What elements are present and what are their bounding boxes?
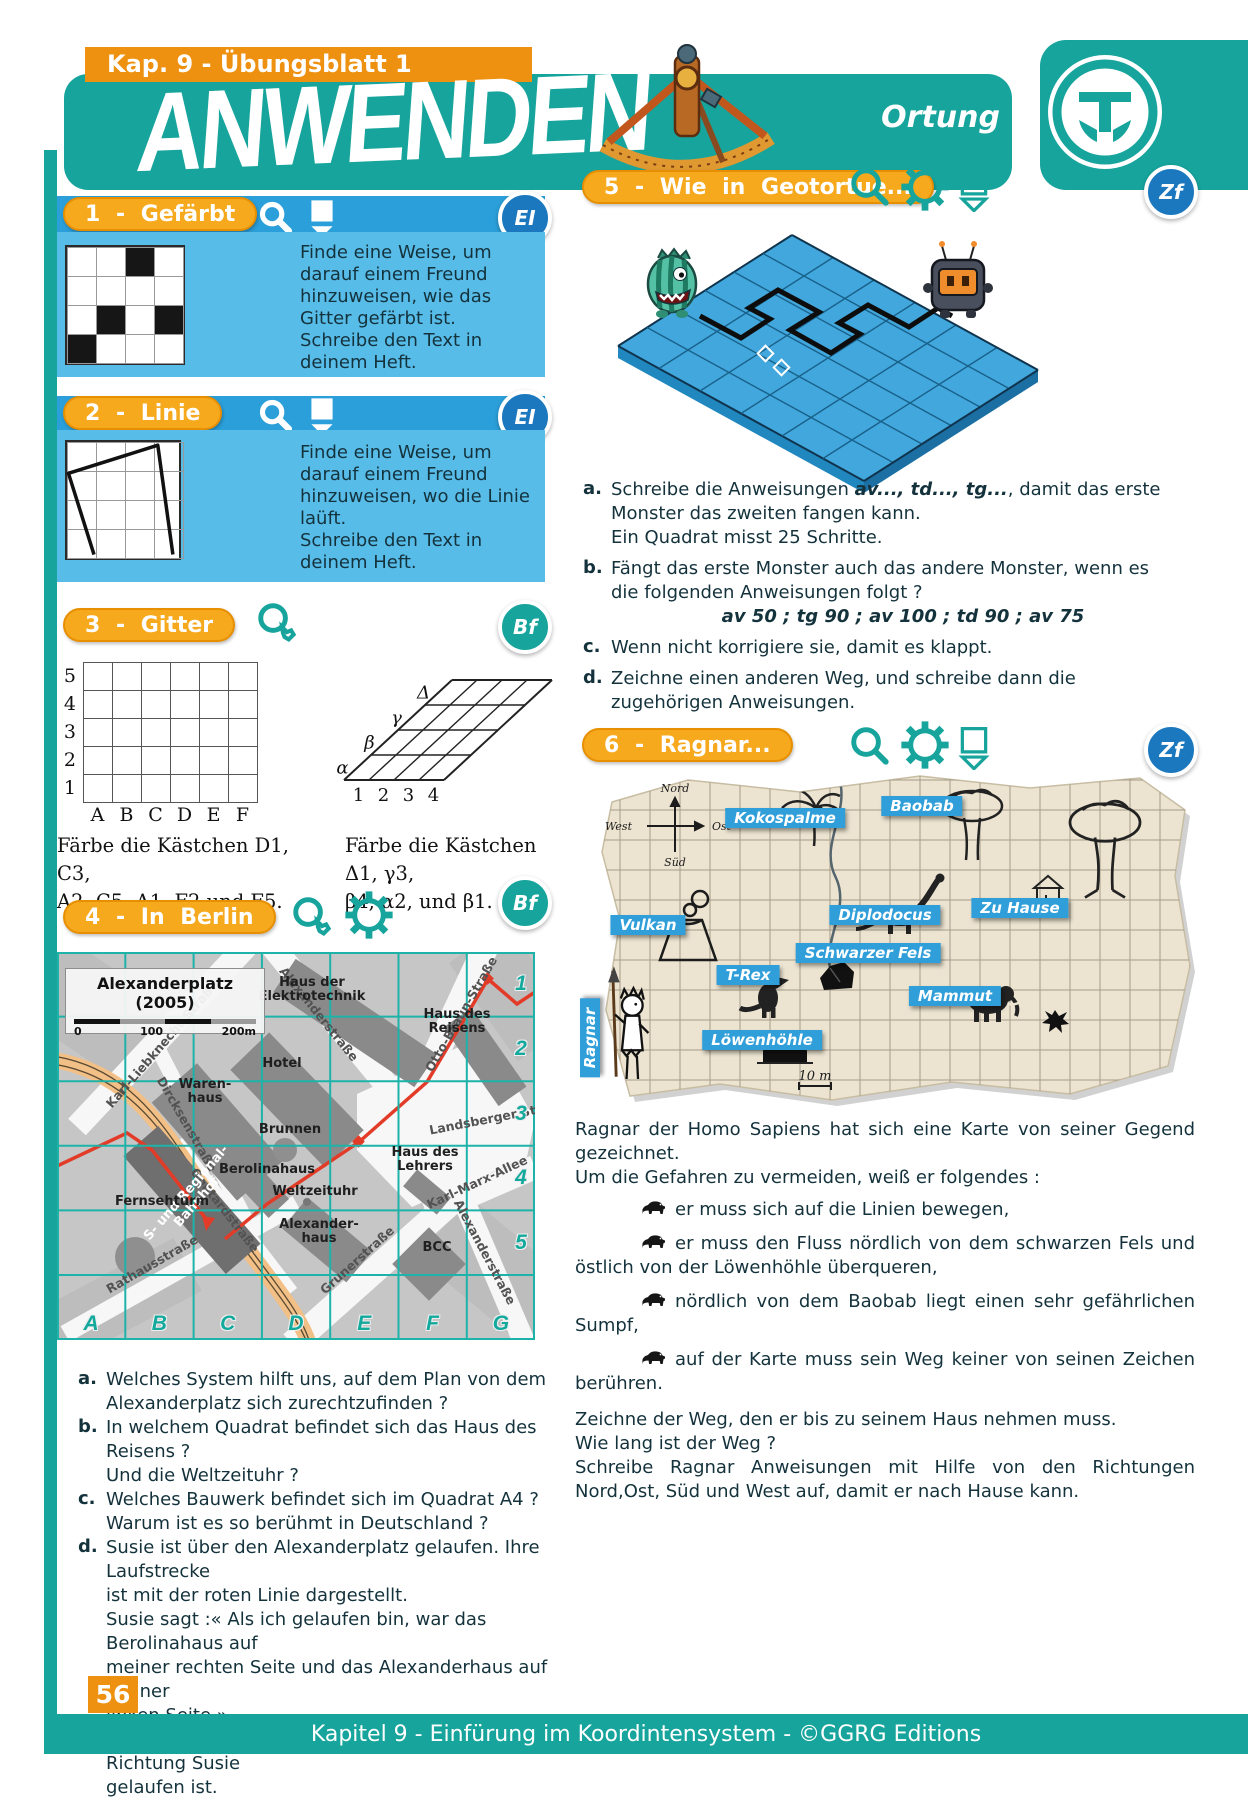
footer-bar: Kapitel 9 - Einfürung im Koordintensyste…: [44, 1714, 1248, 1754]
text: , damit das erste: [1008, 479, 1161, 500]
grid-cell: [228, 690, 258, 719]
bullet-text: er muss sich auf die Linien bewegen,: [675, 1199, 1009, 1220]
bullet-item: nördlich von dem Baobab liegt einen sehr…: [575, 1290, 1195, 1338]
question-row: d.Susie ist über den Alexanderplatz gela…: [78, 1536, 556, 1800]
ex1-pill: 1 - Gefärbt: [63, 197, 257, 231]
item-key: c.: [583, 636, 611, 660]
text-line: darauf einem Freund: [300, 464, 540, 486]
grid-cell: [112, 746, 142, 775]
ragnar-map: Nord West Ost Süd 10 m KokospalmeBaobabV…: [600, 768, 1195, 1108]
text: Schreibe die Anweisungen: [611, 479, 855, 500]
text-line: deinem Heft.: [300, 552, 540, 574]
item-line: Fängt das erste Monster auch das andere …: [611, 557, 1195, 581]
grid-cell: [125, 247, 155, 277]
grid-cell: [96, 276, 126, 306]
grid-label: 3: [403, 785, 414, 806]
grid-cell: [141, 718, 171, 747]
item-lines: Fängt das erste Monster auch das andere …: [611, 557, 1195, 629]
ex2-box: Finde eine Weise, umdarauf einem Freundh…: [57, 430, 545, 582]
text-line: Gitter gefärbt ist.: [300, 308, 540, 330]
question-key: a.: [78, 1368, 106, 1416]
text-line: Finde eine Weise, um: [300, 242, 540, 264]
grid-cell: [228, 662, 258, 691]
grid-label: β: [363, 733, 374, 754]
ex6-pill: 6 - Ragnar...: [582, 728, 793, 762]
ex1-box: Finde eine Weise, umdarauf einem Freundh…: [57, 232, 545, 377]
map-letter: E: [357, 1312, 371, 1336]
exercise-item: a.Schreibe die Anweisungen av..., td...,…: [583, 478, 1195, 550]
text: die folgenden Anweisungen folgt ?: [611, 582, 923, 603]
grid-cell: [83, 774, 113, 803]
grid-cell: [112, 718, 142, 747]
map-number: 4: [515, 1166, 527, 1190]
question-line: In welchem Quadrat befindet sich das Hau…: [106, 1416, 556, 1464]
grid-cell: [125, 334, 155, 364]
grid-cell: [67, 247, 97, 277]
bison-icon: [641, 1199, 665, 1219]
corner: [57, 802, 83, 830]
item-line: die folgenden Anweisungen folgt ?: [611, 581, 1195, 605]
text: Fängt das erste Monster auch das andere …: [611, 558, 1149, 579]
ex6-outro: Zeichne der Weg, den er bis zu seinem Ha…: [575, 1408, 1195, 1504]
col-label: B: [112, 802, 141, 830]
ex3-right-grid: αβγΔ1234: [330, 648, 575, 813]
text: Ein Quadrat misst 25 Schritte.: [611, 527, 883, 548]
intro-line: Ragnar der Homo Sapiens hat sich eine Ka…: [575, 1118, 1195, 1166]
command-text: av..., td..., tg...: [855, 479, 1008, 500]
monster-robot: [923, 241, 993, 318]
map-ribbon: Vulkan: [610, 915, 685, 935]
gear-icon: [342, 888, 396, 942]
question-line: meiner rechten Seite und das Alexanderha…: [106, 1656, 556, 1704]
building-label: Haus des Reisens: [423, 1008, 490, 1036]
brand-logo-icon: [1052, 59, 1158, 165]
row-label: 2: [57, 746, 83, 774]
map-title: Alexanderplatz (2005): [74, 974, 256, 1012]
map-letter: D: [288, 1312, 303, 1336]
ex2-line-figure: [65, 440, 181, 556]
grid-cell: [83, 662, 113, 691]
theme-label: Ortung: [860, 100, 1000, 135]
map-ribbon: Schwarzer Fels: [796, 943, 941, 963]
compass-south: Süd: [664, 856, 686, 869]
intro-line: Um die Gefahren zu vermeiden, weiß er fo…: [575, 1166, 1195, 1190]
grid-cell: [83, 718, 113, 747]
text: zugehörigen Anweisungen.: [611, 692, 855, 713]
map-ribbon: Kokospalme: [725, 808, 845, 828]
item-key: b.: [583, 557, 611, 629]
building-label: Hotel: [262, 1057, 301, 1071]
ex2-text: Finde eine Weise, umdarauf einem Freundh…: [300, 442, 540, 574]
col-label: A: [83, 802, 112, 830]
ex6-bullets: er muss sich auf die Linien bewegen, er …: [575, 1188, 1195, 1396]
item-key: d.: [583, 667, 611, 715]
grid-label: γ: [391, 708, 402, 729]
grid-cell: [199, 746, 229, 775]
magnifier-icon: [290, 894, 336, 940]
map-scale-bar: [74, 1019, 256, 1024]
ex3-badge: Bf: [498, 600, 552, 654]
ex5-items: a.Schreibe die Anweisungen av..., td...,…: [583, 478, 1195, 722]
grid-cell: [112, 774, 142, 803]
scale-label: 0: [74, 1025, 82, 1038]
compass-west: West: [605, 820, 633, 833]
brand-logo: [1048, 55, 1162, 169]
bullet-item: auf der Karte muss sein Weg keiner von s…: [575, 1348, 1195, 1396]
building-label: Fernsehturm: [115, 1195, 209, 1209]
ex4-badge: Bf: [498, 876, 552, 930]
item-lines: Wenn nicht korrigiere sie, damit es klap…: [611, 636, 1195, 660]
grid-label: 2: [378, 785, 389, 806]
building-label: Waren- haus: [179, 1078, 232, 1106]
col-label: C: [141, 802, 170, 830]
bison-icon: [641, 1291, 665, 1311]
grid-cell: [154, 247, 184, 277]
grid-label: 1: [353, 785, 364, 806]
map-number: 3: [515, 1102, 527, 1126]
map-ribbon: T-Rex: [717, 965, 780, 985]
bullet-item: er muss sich auf die Linien bewegen,: [575, 1198, 1195, 1222]
map-number: 5: [515, 1231, 527, 1255]
magnifier-icon: [255, 600, 301, 646]
grid-label: 4: [428, 785, 439, 806]
map-letter: G: [493, 1312, 509, 1336]
grid-cell: [154, 334, 184, 364]
grid-cell: [112, 690, 142, 719]
col-label: E: [199, 802, 228, 830]
question-line: Warum ist es so berühmt in Deutschland ?: [106, 1512, 556, 1536]
map-letter: C: [220, 1312, 235, 1336]
grid-cell: [170, 746, 200, 775]
map-letter: A: [84, 1312, 99, 1336]
item-key: a.: [583, 478, 611, 550]
item-line: Zeichne einen anderen Weg, und schreibe …: [611, 667, 1195, 691]
magnifier-icon: [258, 200, 294, 236]
grid-cell: [96, 334, 126, 364]
grid-cell: [67, 334, 97, 364]
grid-label: α: [336, 758, 348, 779]
grid-cell: [141, 774, 171, 803]
outro-line: Schreibe Ragnar Anweisungen mit Hilfe vo…: [575, 1456, 1195, 1504]
question-lines: Welches System hilft uns, auf dem Plan v…: [106, 1368, 556, 1416]
map-scale-labels: 0100200m: [74, 1025, 256, 1038]
ragnar-name-ribbon: Ragnar: [580, 999, 600, 1078]
question-line: Susie sagt :« Als ich gelaufen bin, war …: [106, 1608, 556, 1656]
grid-cell: [141, 690, 171, 719]
gear-icon: [898, 718, 952, 772]
magnifier-icon: [848, 724, 894, 770]
map-ribbon: Löwenhöhle: [702, 1030, 822, 1050]
grid-cell: [170, 690, 200, 719]
exercise-item: b.Fängt das erste Monster auch das ander…: [583, 557, 1195, 629]
item-line: av 50 ; tg 90 ; av 100 ; td 90 ; av 75: [611, 605, 1195, 629]
question-line: Alexanderplatz sich zurechtzufinden ?: [106, 1392, 556, 1416]
scale-label: 10 m: [798, 1069, 831, 1084]
ex6-intro: Ragnar der Homo Sapiens hat sich eine Ka…: [575, 1118, 1195, 1190]
item-line: zugehörigen Anweisungen.: [611, 691, 1195, 715]
question-line: Welches Bauwerk befindet sich im Quadrat…: [106, 1488, 556, 1512]
compass-north: Nord: [660, 782, 690, 795]
grid-cell: [83, 746, 113, 775]
left-accent-bar: [44, 150, 57, 1754]
text-line: darauf einem Freund: [300, 264, 540, 286]
map-ribbon: Diplodocus: [829, 905, 940, 925]
question-line: Susie ist über den Alexanderplatz gelauf…: [106, 1536, 556, 1584]
ragnar-map-figure: Nord West Ost Süd 10 m: [600, 768, 1195, 1108]
grid-cell: [141, 662, 171, 691]
ex1-text: Finde eine Weise, umdarauf einem Freundh…: [300, 242, 540, 374]
geotortue-figure: [600, 198, 1070, 498]
question-line: Und die Weltzeituhr ?: [106, 1464, 556, 1488]
item-line: Ein Quadrat misst 25 Schritte.: [611, 526, 1195, 550]
building-label: Haus der Elektrotechnik: [259, 976, 366, 1004]
grid-cell: [170, 662, 200, 691]
item-line: Monster das zweiten fangen kann.: [611, 502, 1195, 526]
building-label: Brunnen: [259, 1123, 321, 1137]
grid-cell: [170, 718, 200, 747]
text-line: laüft.: [300, 508, 540, 530]
text: Wenn nicht korrigiere sie, damit es klap…: [611, 637, 992, 658]
grid-cell: [154, 276, 184, 306]
row-label: 3: [57, 718, 83, 746]
text-line: hinzuweisen, wo die Linie: [300, 486, 540, 508]
question-key: b.: [78, 1416, 106, 1488]
magnifier-icon: [258, 398, 294, 434]
question-line: ist mit der roten Linie dargestellt.: [106, 1584, 556, 1608]
exercise-item: d.Zeichne einen anderen Weg, und schreib…: [583, 667, 1195, 715]
pencil-icon: [955, 726, 993, 770]
item-lines: Zeichne einen anderen Weg, und schreibe …: [611, 667, 1195, 715]
building-label: Weltzeituhr: [272, 1185, 357, 1199]
map-ribbon: Mammut: [909, 986, 1001, 1006]
map-ribbon: Zu Hause: [971, 898, 1068, 918]
text-line: Schreibe den Text in: [300, 330, 540, 352]
exercise-item: c.Wenn nicht korrigiere sie, damit es kl…: [583, 636, 1195, 660]
question-row: b.In welchem Quadrat befindet sich das H…: [78, 1416, 556, 1488]
question-lines: In welchem Quadrat befindet sich das Hau…: [106, 1416, 556, 1488]
row-label: 4: [57, 690, 83, 718]
map-letter: B: [152, 1312, 167, 1336]
grid-cell: [125, 276, 155, 306]
ex2-grid-wrap: [65, 440, 181, 556]
bison-icon: [641, 1349, 665, 1369]
bullet-text: nördlich von dem Baobab liegt einen sehr…: [575, 1291, 1195, 1336]
row-label: 1: [57, 774, 83, 802]
text: Monster das zweiten fangen kann.: [611, 503, 921, 524]
grid-cell: [67, 276, 97, 306]
bullet-item: er muss den Fluss nördlich von dem schwa…: [575, 1232, 1195, 1280]
ex1-grid: [65, 245, 185, 365]
outro-line: Zeichne der Weg, den er bis zu seinem Ha…: [575, 1408, 1195, 1432]
grid-cell: [199, 718, 229, 747]
question-lines: Susie ist über den Alexanderplatz gelauf…: [106, 1536, 556, 1800]
grid-cell: [96, 305, 126, 335]
question-row: c.Welches Bauwerk befindet sich im Quadr…: [78, 1488, 556, 1536]
grid-cell: [199, 662, 229, 691]
map-ribbon: Baobab: [881, 796, 962, 816]
outro-line: Wie lang ist der Weg ?: [575, 1432, 1195, 1456]
map-title-box: Alexanderplatz (2005) 0100200m: [65, 968, 265, 1034]
question-key: d.: [78, 1536, 106, 1800]
grid-cell: [199, 774, 229, 803]
bison-icon: [641, 1233, 665, 1253]
grid-cell: [228, 774, 258, 803]
ex5-badge: Zf: [1144, 165, 1198, 219]
text-line: Schreibe den Text in: [300, 530, 540, 552]
item-line: Wenn nicht korrigiere sie, damit es klap…: [611, 636, 1195, 660]
command-text: av 50 ; tg 90 ; av 100 ; td 90 ; av 75: [722, 606, 1085, 627]
ex4-pill: 4 - In Berlin: [63, 900, 276, 934]
item-line: Schreibe die Anweisungen av..., td..., t…: [611, 478, 1195, 502]
grid-cell: [228, 746, 258, 775]
bullet-text: er muss den Fluss nördlich von dem schwa…: [575, 1233, 1195, 1278]
row-label: 5: [57, 662, 83, 690]
grid-cell: [125, 305, 155, 335]
bullet-text: auf der Karte muss sein Weg keiner von s…: [575, 1349, 1195, 1394]
scale-label: 100: [140, 1025, 163, 1038]
page-number: 56: [88, 1676, 138, 1713]
grid-cell: [228, 718, 258, 747]
grid-label: Δ: [416, 683, 430, 704]
map-number: 1: [515, 972, 527, 996]
grid-cell: [67, 305, 97, 335]
grid-cell: [112, 662, 142, 691]
scale-label: 200m: [222, 1025, 256, 1038]
text-line: hinzuweisen, wie das: [300, 286, 540, 308]
building-label: BCC: [423, 1241, 452, 1255]
item-lines: Schreibe die Anweisungen av..., td..., t…: [611, 478, 1195, 550]
caption-line: Färbe die Kästchen D1, C3,: [57, 832, 317, 888]
map-letter: F: [426, 1312, 439, 1336]
question-line: Welches System hilft uns, auf dem Plan v…: [106, 1368, 556, 1392]
ex3-left-grid: 54321ABCDEF: [57, 662, 257, 830]
question-line: gelaufen ist.: [106, 1776, 556, 1800]
ex2-pill: 2 - Linie: [63, 396, 222, 430]
berlin-map: Karl-Liebknecht-StraßeDircksenstraßeGont…: [57, 952, 535, 1340]
col-label: F: [228, 802, 257, 830]
ex3-pill: 3 - Gitter: [63, 608, 235, 642]
col-label: D: [170, 802, 199, 830]
building-label: Alexander- haus: [279, 1218, 359, 1246]
text: Zeichne einen anderen Weg, und schreibe …: [611, 668, 1076, 689]
map-number: 2: [515, 1037, 527, 1061]
grid-cell: [170, 774, 200, 803]
footer-text: Kapitel 9 - Einfürung im Koordintensyste…: [311, 1722, 981, 1747]
text-line: Finde eine Weise, um: [300, 442, 540, 464]
question-lines: Welches Bauwerk befindet sich im Quadrat…: [106, 1488, 556, 1536]
question-row: a.Welches System hilft uns, auf dem Plan…: [78, 1368, 556, 1416]
grid-cell: [83, 690, 113, 719]
text-line: deinem Heft.: [300, 352, 540, 374]
grid-cell: [199, 690, 229, 719]
grid-cell: [96, 247, 126, 277]
building-label: Haus des Lehrers: [370, 1146, 480, 1174]
question-key: c.: [78, 1488, 106, 1536]
grid-cell: [141, 746, 171, 775]
grid-cell: [154, 305, 184, 335]
